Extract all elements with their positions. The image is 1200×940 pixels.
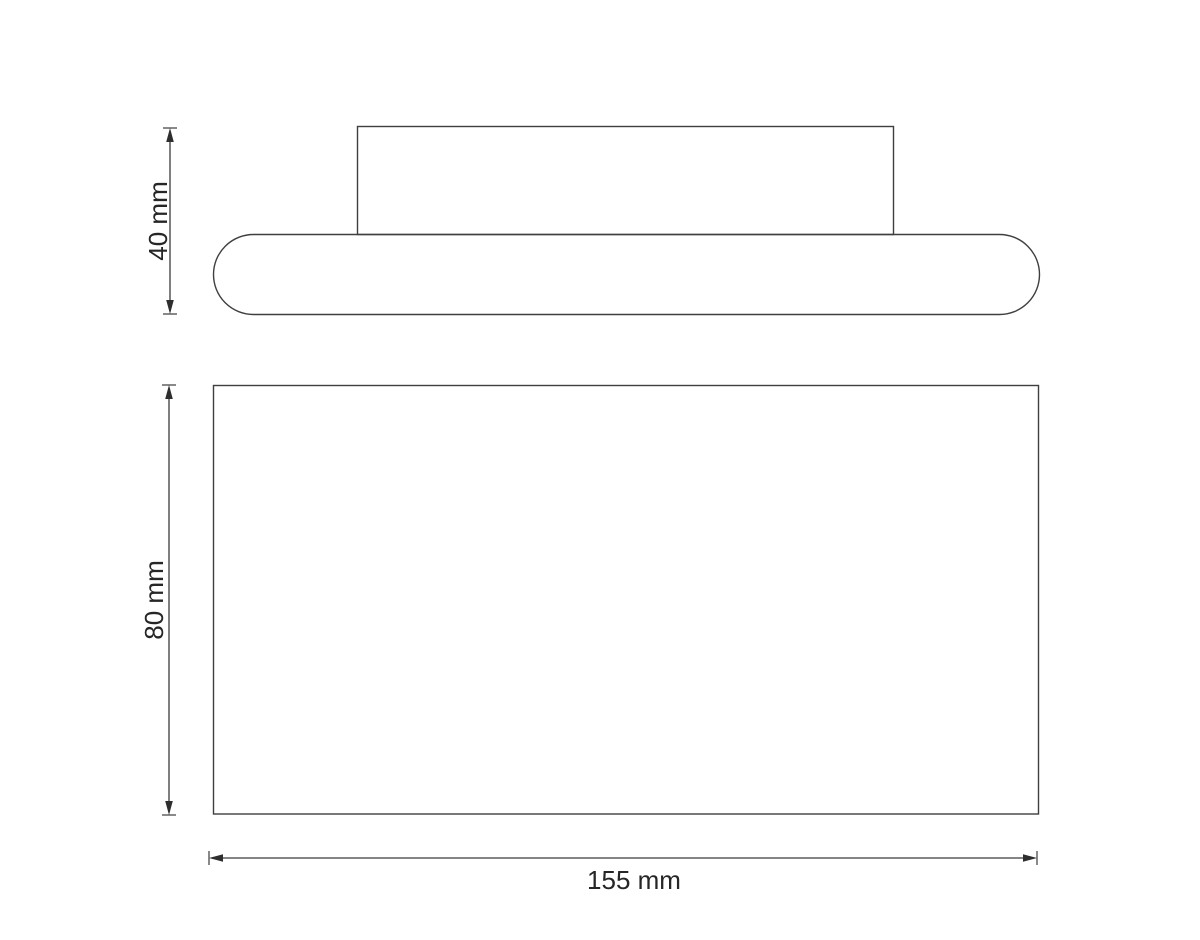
dimension-80mm: 80 mm (139, 385, 176, 815)
arrowhead-right-icon (1023, 854, 1037, 862)
drawing-canvas: 40 mm 80 mm 155 mm (0, 0, 1200, 940)
dimension-drawing: 40 mm 80 mm 155 mm (0, 0, 1200, 940)
dimension-label-40mm: 40 mm (143, 181, 173, 260)
dimension-40mm: 40 mm (143, 128, 177, 314)
front-view (214, 386, 1039, 815)
arrowhead-up-icon (166, 128, 174, 142)
dimension-label-155mm: 155 mm (587, 865, 681, 895)
arrowhead-down-icon (165, 801, 173, 815)
front-view-outline (214, 386, 1039, 815)
arrowhead-up-icon (165, 385, 173, 399)
dimension-155mm: 155 mm (209, 851, 1037, 895)
side-view-body-outline (214, 235, 1040, 315)
arrowhead-down-icon (166, 300, 174, 314)
side-profile-view (214, 127, 1040, 315)
dimension-label-80mm: 80 mm (139, 560, 169, 639)
arrowhead-left-icon (209, 854, 223, 862)
side-view-mount-plate-outline (358, 127, 894, 235)
